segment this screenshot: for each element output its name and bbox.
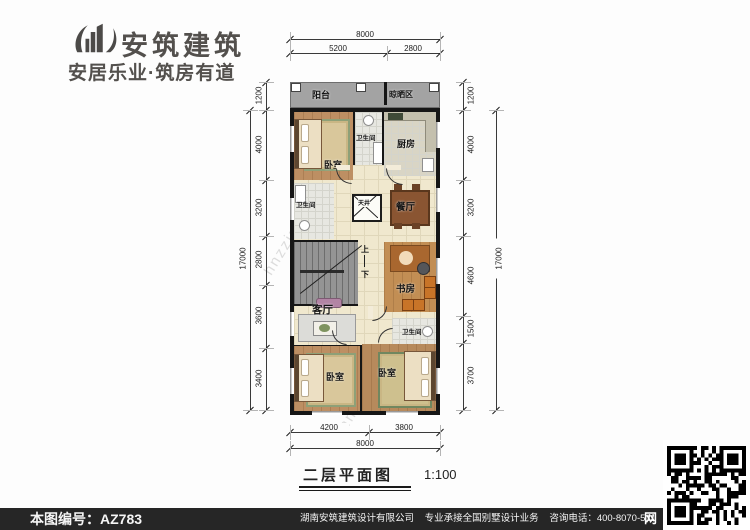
dim-extension	[259, 285, 274, 286]
dim-left-1: 4000	[255, 125, 264, 165]
dim-right-5: 3700	[467, 356, 476, 396]
window	[436, 258, 440, 284]
dim-extension	[456, 180, 471, 181]
stairs-updown-line	[364, 255, 365, 267]
footer-phone: 咨询电话：400-8070-511	[549, 513, 655, 524]
dim-right-2: 3200	[467, 188, 476, 228]
dim-extension	[456, 316, 471, 317]
room-bath-mid: 卫生间	[294, 183, 334, 239]
bed-headboard	[295, 120, 299, 168]
window	[290, 312, 294, 336]
dim-line-bottom-segments	[290, 432, 440, 433]
dim-extension	[290, 32, 291, 47]
title-underline-thin	[299, 490, 411, 491]
room-label-bedroom-bl: 卧室	[326, 370, 344, 383]
desk-lamp-glow	[399, 251, 413, 265]
dim-extension	[259, 180, 274, 181]
dim-extension	[387, 46, 388, 61]
dim-extension	[259, 348, 274, 349]
dim-left-total: 17000	[239, 239, 248, 279]
room-label-kitchen: 厨房	[397, 137, 415, 150]
footer-company: 湖南安筑建筑设计有限公司	[300, 513, 414, 524]
dim-extension	[290, 425, 291, 440]
pillow	[301, 146, 309, 164]
dim-left-3: 2800	[255, 240, 264, 280]
dim-line-left-total	[250, 110, 251, 410]
dim-extension	[290, 441, 291, 456]
room-balcony: 阳台 晾晒区	[290, 82, 440, 111]
cabinet-box	[413, 299, 425, 311]
pillow	[421, 379, 429, 397]
stair-landing-divider	[300, 270, 344, 273]
building-swoosh-icon	[72, 20, 120, 56]
window	[290, 198, 294, 220]
dim-extension	[243, 410, 258, 411]
bed	[294, 354, 324, 402]
pillow	[301, 359, 309, 376]
fridge	[422, 158, 434, 172]
balcony-divider-wall	[384, 82, 387, 105]
lightwell: 天井	[352, 194, 382, 222]
room-label-living: 客厅	[312, 302, 333, 317]
dim-line-right-segments	[463, 82, 464, 410]
room-label-balcony: 阳台	[312, 88, 330, 101]
brand-logo-icon	[72, 20, 120, 56]
dim-right-3: 4600	[467, 256, 476, 296]
table-plant	[319, 324, 330, 332]
column-marker	[429, 83, 439, 92]
dim-top-right: 2800	[393, 44, 433, 53]
office-chair	[417, 262, 430, 275]
footer-service: 专业承接全国别墅设计业务	[425, 513, 539, 524]
floor-plan: 阳台 晾晒区 卧室 卫生间	[290, 82, 440, 415]
dim-extension	[243, 110, 258, 111]
toilet	[363, 115, 374, 126]
room-label-dining: 餐厅	[396, 199, 415, 213]
window	[290, 126, 294, 152]
footer-bar: 本图编号：AZ783 湖南安筑建筑设计有限公司 专业承接全国别墅设计业务 咨询电…	[0, 508, 750, 530]
dim-top-left: 5200	[318, 44, 358, 53]
dim-extension	[440, 32, 441, 47]
stairs-down-label: 下	[361, 269, 369, 280]
dim-line-bottom-total	[290, 448, 440, 449]
sofa	[298, 314, 356, 342]
window	[436, 188, 440, 212]
room-bedroom-bl: 卧室	[294, 346, 360, 411]
room-label-bath-low: 卫生间	[402, 326, 422, 336]
dim-left-5: 3400	[255, 359, 264, 399]
bed-headboard	[431, 352, 435, 400]
stove	[388, 113, 403, 120]
pillow	[421, 357, 429, 375]
pillow	[301, 380, 309, 397]
dim-line-top-segments	[290, 53, 440, 54]
stairs	[294, 240, 358, 306]
brand-tagline: 安居乐业·筑房有道	[68, 58, 235, 85]
dining-chair	[394, 223, 402, 229]
dim-top-total: 8000	[345, 30, 385, 39]
dim-bottom-left: 4200	[309, 423, 349, 432]
dim-extension	[456, 410, 471, 411]
dim-right-total: 17000	[495, 239, 504, 279]
page: 安筑建筑 安居乐业·筑房有道 hnzzjz.com hnzzjz.com hnz…	[0, 0, 750, 530]
room-bedroom-br: 卧室	[362, 344, 436, 411]
window	[386, 411, 418, 415]
bed	[404, 351, 436, 401]
window	[290, 368, 294, 394]
bed-headboard	[295, 355, 299, 401]
dim-bottom-total: 8000	[345, 439, 385, 448]
dim-extension	[259, 110, 274, 111]
window	[312, 411, 342, 415]
dim-extension	[456, 236, 471, 237]
dim-line-top-total	[290, 39, 440, 40]
footer-info: 湖南安筑建筑设计有限公司 专业承接全国别墅设计业务 咨询电话：400-8070-…	[300, 508, 663, 530]
dim-extension	[259, 82, 274, 83]
room-bath-low: 卫生间	[392, 318, 436, 344]
footer-web-char: 网	[644, 508, 657, 530]
column-marker	[356, 83, 366, 92]
toilet	[299, 220, 310, 231]
dim-extension	[259, 236, 274, 237]
title-underline	[299, 486, 411, 488]
dim-left-4: 3600	[255, 296, 264, 336]
room-label-study: 书房	[396, 281, 415, 295]
room-label-lightwell: 天井	[358, 198, 370, 207]
dim-extension	[259, 410, 274, 411]
dim-right-1: 4000	[467, 125, 476, 165]
dim-extension	[290, 46, 291, 61]
cabinet-box	[424, 287, 436, 299]
dim-extension	[489, 110, 504, 111]
toilet	[422, 326, 433, 337]
dim-extension	[440, 46, 441, 61]
pillow	[301, 124, 309, 142]
room-study: 书房	[384, 242, 436, 312]
footer-serial: 本图编号：AZ783	[30, 508, 142, 530]
room-bath-top: 卫生间	[355, 112, 382, 165]
room-label-bedroom-br: 卧室	[378, 366, 396, 379]
dim-extension	[440, 441, 441, 456]
dim-line-left-segments	[266, 82, 267, 410]
kitchen-counter-side	[425, 120, 436, 152]
dim-extension	[456, 343, 471, 344]
column-marker	[291, 83, 301, 92]
bathtub	[373, 142, 382, 164]
dim-extension	[440, 425, 441, 440]
dim-extension	[456, 110, 471, 111]
window	[436, 368, 440, 394]
bed	[294, 119, 322, 169]
room-label-bath-mid: 卫生间	[296, 199, 316, 209]
room-label-drying: 晾晒区	[389, 89, 413, 100]
plan-title: 二层平面图	[303, 464, 393, 485]
dim-extension	[369, 425, 370, 440]
dim-left-2: 3200	[255, 188, 264, 228]
room-label-bath-top: 卫生间	[356, 132, 376, 142]
plan-scale: 1:100	[424, 467, 457, 482]
qr-code	[663, 440, 750, 530]
dim-bottom-right: 3800	[384, 423, 424, 432]
dim-extension	[489, 410, 504, 411]
dim-extension	[456, 82, 471, 83]
window	[436, 122, 440, 148]
dining-chair	[412, 184, 420, 190]
dining-chair	[412, 223, 420, 229]
stairs-up-label: 上	[361, 244, 369, 255]
